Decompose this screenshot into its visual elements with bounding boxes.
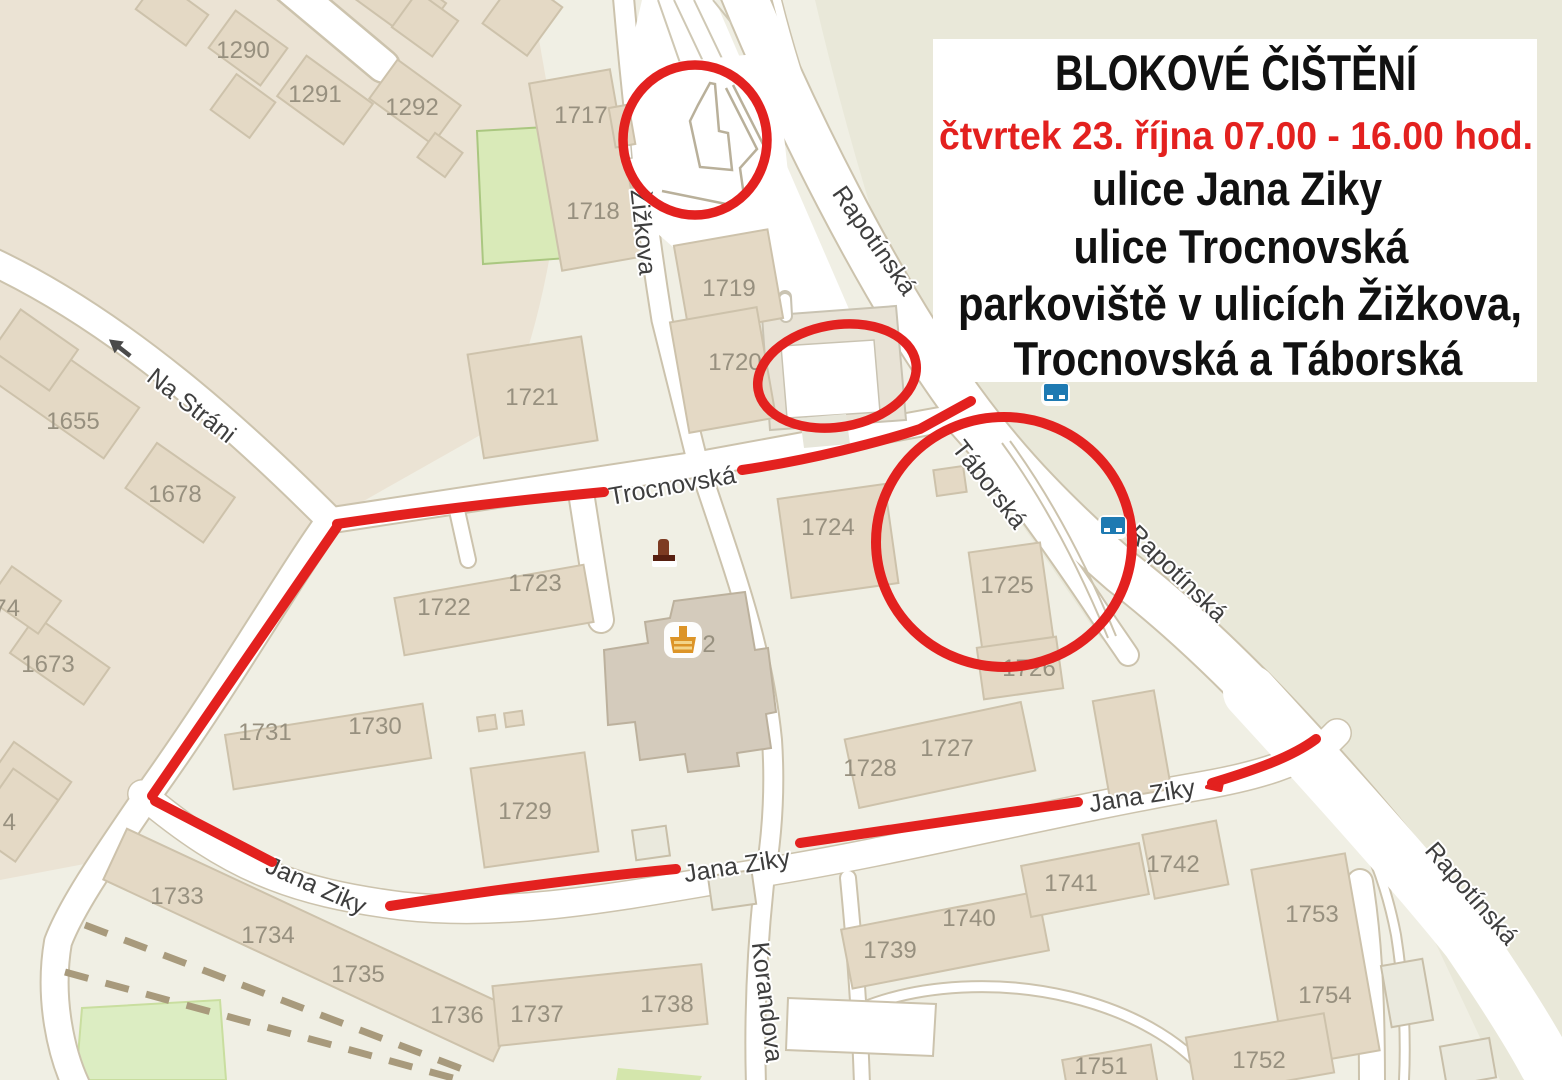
svg-text:1754: 1754 <box>1298 982 1351 1009</box>
svg-text:1730: 1730 <box>348 713 401 740</box>
svg-text:1738: 1738 <box>640 991 693 1018</box>
svg-text:1673: 1673 <box>21 651 74 678</box>
svg-text:1724: 1724 <box>801 514 854 541</box>
svg-text:1727: 1727 <box>920 735 973 762</box>
svg-text:1678: 1678 <box>148 481 201 508</box>
svg-text:ulice Trocnovská: ulice Trocnovská <box>1074 220 1410 273</box>
svg-text:4: 4 <box>3 809 16 836</box>
svg-text:1725: 1725 <box>980 572 1033 599</box>
svg-text:BLOKOVÉ ČIŠTĚNÍ: BLOKOVÉ ČIŠTĚNÍ <box>1055 44 1418 101</box>
svg-text:1291: 1291 <box>288 81 341 108</box>
svg-text:1290: 1290 <box>216 37 269 64</box>
svg-text:1742: 1742 <box>1146 851 1199 878</box>
svg-text:čtvrtek 23. října 07.00 - 16.0: čtvrtek 23. října 07.00 - 16.00 hod. <box>939 115 1533 158</box>
svg-text:1735: 1735 <box>331 961 384 988</box>
svg-text:1737: 1737 <box>510 1001 563 1028</box>
svg-text:1751: 1751 <box>1074 1053 1127 1080</box>
svg-text:1731: 1731 <box>238 719 291 746</box>
svg-text:parkoviště v ulicích Žižkova,: parkoviště v ulicích Žižkova, <box>958 277 1522 330</box>
svg-text:2: 2 <box>702 631 715 658</box>
svg-text:Trocnovská a Táborská: Trocnovská a Táborská <box>1014 332 1464 385</box>
svg-text:1718: 1718 <box>566 198 619 225</box>
svg-text:1739: 1739 <box>863 937 916 964</box>
svg-text:1719: 1719 <box>702 275 755 302</box>
svg-text:1728: 1728 <box>843 755 896 782</box>
svg-text:1736: 1736 <box>430 1002 483 1029</box>
svg-text:1292: 1292 <box>385 94 438 121</box>
svg-text:1733: 1733 <box>150 883 203 910</box>
svg-text:1717: 1717 <box>554 102 607 129</box>
svg-text:1720: 1720 <box>708 349 761 376</box>
svg-text:1753: 1753 <box>1285 901 1338 928</box>
svg-text:1723: 1723 <box>508 570 561 597</box>
svg-text:74: 74 <box>0 595 20 622</box>
svg-text:1655: 1655 <box>46 408 99 435</box>
svg-text:1740: 1740 <box>942 905 995 932</box>
svg-text:1729: 1729 <box>498 798 551 825</box>
svg-text:1752: 1752 <box>1232 1047 1285 1074</box>
svg-text:1741: 1741 <box>1044 870 1097 897</box>
svg-text:ulice Jana Ziky: ulice Jana Ziky <box>1092 162 1382 215</box>
svg-text:1721: 1721 <box>505 384 558 411</box>
svg-text:1734: 1734 <box>241 922 294 949</box>
svg-text:1722: 1722 <box>417 594 470 621</box>
